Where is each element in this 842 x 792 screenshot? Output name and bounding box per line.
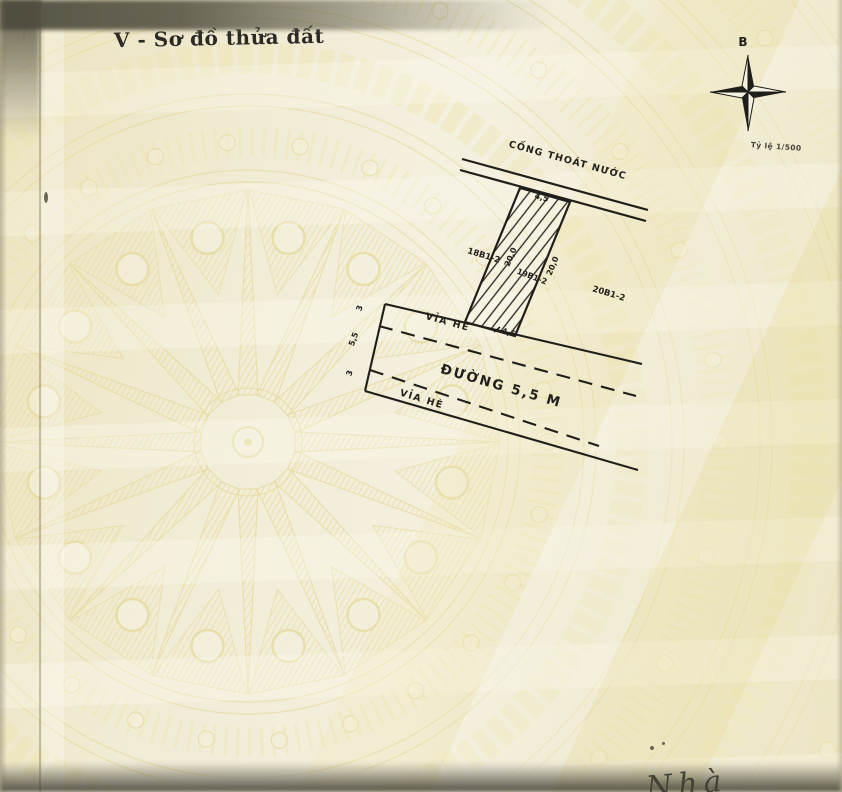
scale-label: Tỷ lệ 1/500 (750, 140, 801, 153)
sidewalk-lower-label: VỈA HÈ (398, 387, 445, 412)
sidewalk-upper-label: VỈA HÈ (424, 310, 471, 334)
road-edge-lower (370, 370, 599, 446)
emblem-watermark (0, 0, 842, 792)
ink-speck (662, 742, 665, 745)
road-edge-upper (379, 326, 636, 396)
left-closure-line (365, 304, 385, 391)
parcel-boundary (465, 188, 570, 336)
sidewalk-upper-width: 3 (354, 304, 364, 312)
photo-edge-right (836, 0, 842, 792)
drainage-line-lower (460, 170, 646, 221)
adjacent-parcel-left: 18B1-2 (466, 246, 501, 265)
paper-speck (44, 192, 48, 203)
compass-rose: B Tỷ lệ 1/500 (710, 35, 802, 153)
sidewalk-lower-width: 3 (344, 369, 354, 377)
photo-edge-left (0, 0, 7, 792)
front-width-tick (494, 327, 500, 332)
photo-of-land-certificate-page: CỐNG THOÁT NƯỚC 4,5 20,0 20,0 19B1-2 4,5… (0, 0, 842, 792)
parcel-front-width: 4,5 (501, 326, 517, 339)
parcel-rear-width: 4,5 (534, 191, 550, 204)
photo-tint (0, 0, 842, 792)
compass-star-light (710, 55, 786, 131)
compass-star-dark (710, 55, 786, 131)
photo-edge-top (0, 0, 842, 30)
parcel-length-left: 20,0 (503, 246, 519, 268)
compass-north-label: B (738, 35, 747, 49)
street-lines (365, 304, 642, 470)
sidewalk-outer-line (365, 391, 638, 470)
fold-highlight (42, 0, 64, 792)
parcel-length-right: 20,0 (545, 255, 561, 277)
plot-diagram: CỐNG THOÁT NƯỚC 4,5 20,0 20,0 19B1-2 4,5… (0, 0, 842, 792)
drainage-channel (460, 159, 648, 221)
parcel-number: 19B1-2 (515, 267, 548, 287)
light-reflection-bands (0, 0, 842, 792)
road-label: ĐƯỜNG 5,5 M (439, 359, 565, 411)
road-width: 5,5 (347, 331, 360, 348)
adjacent-parcel-right: 20B1-2 (591, 284, 626, 303)
drainage-line-upper (462, 159, 648, 210)
ink-speck (650, 746, 654, 750)
drainage-label: CỐNG THOÁT NƯỚC (507, 137, 628, 182)
photo-edge-bottom (0, 762, 842, 792)
frontage-line (385, 304, 642, 364)
paper-texture-bands (0, 0, 842, 792)
